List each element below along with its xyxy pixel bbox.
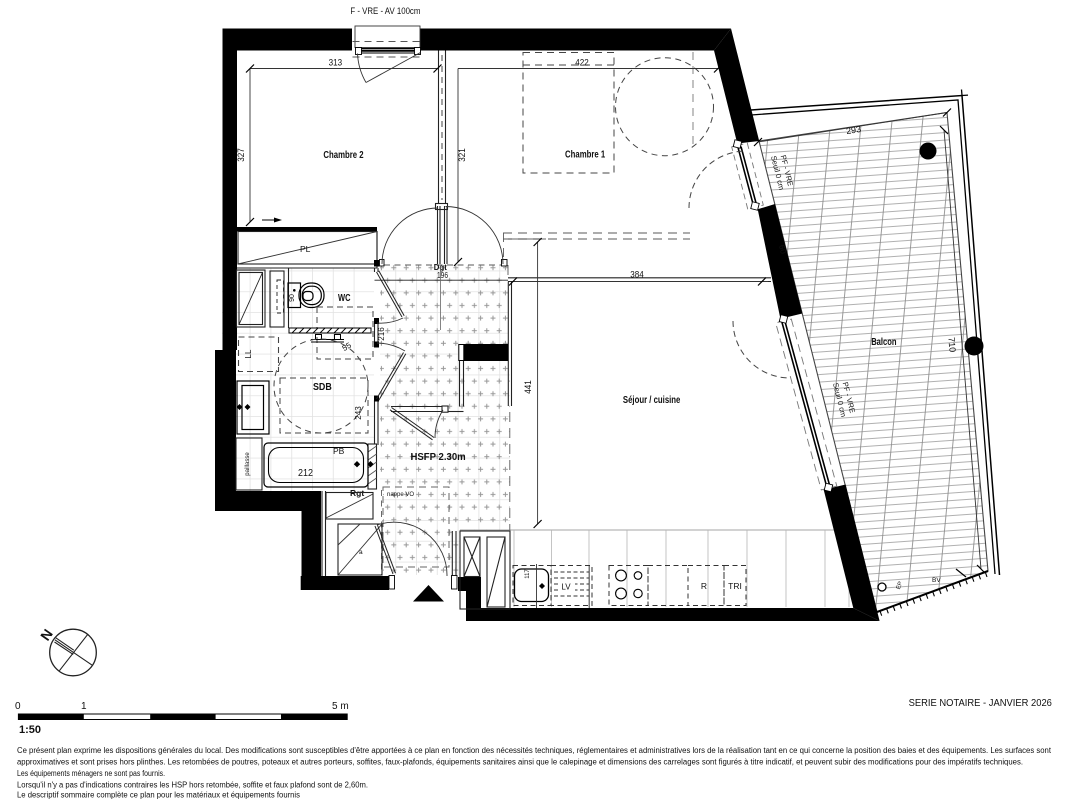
- svg-text:approximatives et sont prises: approximatives et sont prises hors plint…: [17, 758, 1023, 767]
- svg-text:TRI: TRI: [728, 581, 742, 591]
- svg-text:paillasse: paillasse: [245, 452, 251, 476]
- svg-text:PB: PB: [333, 446, 345, 456]
- svg-text:SERIE NOTAIRE - JANVIER 2026: SERIE NOTAIRE - JANVIER 2026: [909, 698, 1053, 709]
- svg-text:R: R: [701, 581, 707, 591]
- svg-text:Le descriptif sommaire complèt: Le descriptif sommaire complète ce plan …: [17, 791, 300, 800]
- svg-text:117: 117: [525, 569, 531, 579]
- svg-text:Balcon: Balcon: [871, 337, 896, 348]
- svg-text:Les équipements ménagers ne so: Les équipements ménagers ne sont pas fou…: [17, 769, 165, 778]
- svg-text:WC: WC: [338, 293, 351, 304]
- svg-text:Chambre 1: Chambre 1: [565, 150, 606, 161]
- svg-text:nappe VO: nappe VO: [387, 492, 414, 498]
- svg-text:5 m: 5 m: [332, 701, 349, 712]
- svg-text:321: 321: [457, 148, 468, 162]
- svg-text:Ce présent plan exprime les di: Ce présent plan exprime les dispositions…: [17, 746, 1052, 755]
- svg-text:327: 327: [236, 148, 247, 162]
- svg-text:1: 1: [81, 701, 87, 712]
- svg-text:LV: LV: [561, 583, 571, 592]
- svg-text:196: 196: [437, 271, 448, 280]
- svg-text:422: 422: [575, 58, 589, 69]
- svg-text:384: 384: [630, 270, 644, 281]
- svg-text:216: 216: [377, 327, 386, 341]
- svg-text:SDB: SDB: [313, 382, 332, 393]
- svg-text:PL: PL: [300, 244, 311, 254]
- svg-text:Séjour / cuisine: Séjour / cuisine: [623, 395, 681, 406]
- svg-text:441: 441: [523, 380, 534, 394]
- svg-text:243: 243: [354, 406, 363, 420]
- svg-text:LL: LL: [244, 349, 253, 358]
- svg-text:a: a: [359, 549, 363, 556]
- svg-text:BV: BV: [932, 577, 941, 584]
- svg-text:Chambre 2: Chambre 2: [323, 150, 364, 161]
- svg-text:313: 313: [329, 58, 343, 69]
- svg-text:HSFP 2.30m: HSFP 2.30m: [411, 451, 466, 463]
- svg-text:0: 0: [15, 701, 21, 712]
- svg-text:1:50: 1:50: [19, 724, 41, 736]
- svg-text:90: 90: [289, 294, 296, 302]
- svg-text:F - VRE - AV 100cm: F - VRE - AV 100cm: [350, 6, 420, 16]
- svg-text:Lorsqu'il n'y a pas d'indicati: Lorsqu'il n'y a pas d'indications contra…: [17, 781, 368, 790]
- svg-text:212: 212: [298, 468, 313, 479]
- svg-text:710: 710: [946, 337, 957, 353]
